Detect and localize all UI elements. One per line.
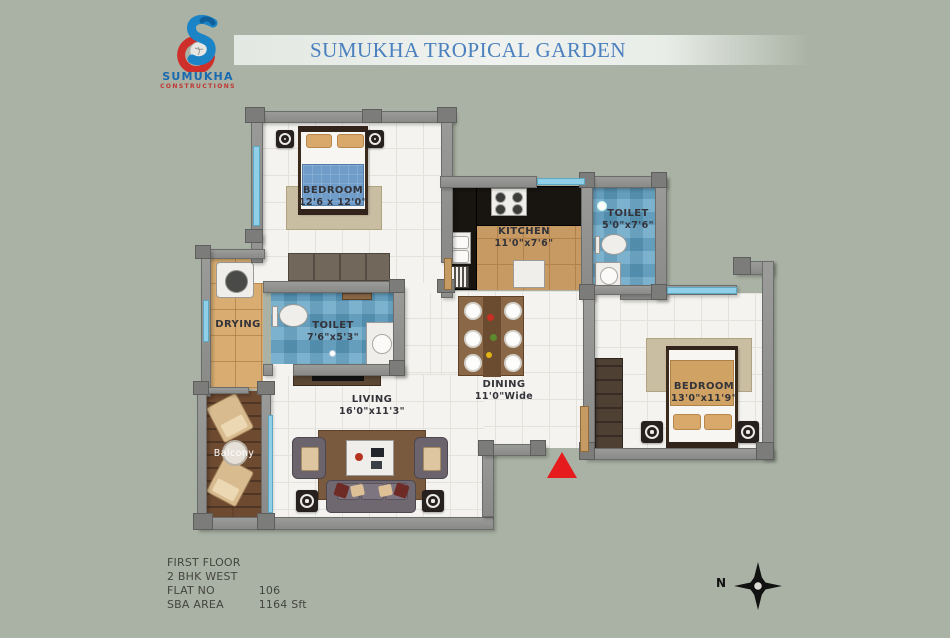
wall-pillar <box>389 279 405 293</box>
wall-pillar <box>651 284 667 300</box>
wall-segment <box>585 448 774 460</box>
toilet-tank <box>272 306 278 327</box>
plate <box>464 354 482 372</box>
plate <box>464 330 482 348</box>
refrigerator <box>513 260 545 288</box>
shelf <box>342 293 372 300</box>
coffee-table <box>346 440 394 476</box>
nightstand <box>737 421 759 443</box>
kitchen-door-leaf <box>444 258 452 290</box>
info-sba: SBA AREA 1164 Sft <box>167 598 307 612</box>
flat-no-label: FLAT NO <box>167 584 255 598</box>
wall-pillar <box>478 440 494 456</box>
floor-hall <box>403 291 443 378</box>
sliding-door-glazing <box>268 415 273 513</box>
window <box>667 287 737 294</box>
floor-plan-page: SUMUKHA TROPICAL GARDEN SUMUKHA CONSTRUC… <box>0 0 950 638</box>
wall-pillar <box>257 513 275 530</box>
wall-pillar <box>195 245 211 259</box>
info-flat: FLAT NO 106 <box>167 584 307 598</box>
armchair <box>292 437 326 479</box>
label-drying: DRYING <box>215 319 260 331</box>
washing-machine <box>216 262 254 298</box>
flat-no-value: 106 <box>259 584 281 598</box>
wardrobe <box>288 253 390 281</box>
logo-name: SUMUKHA <box>156 70 240 83</box>
label-kitchen: KITCHEN11'0"x7'6" <box>495 226 554 249</box>
wardrobe <box>595 358 623 450</box>
wall-pillar <box>245 107 265 123</box>
label-bedroom1: BEDROOM12'6 x 12'0" <box>299 185 367 208</box>
armchair <box>414 437 448 479</box>
wall-segment <box>762 261 774 460</box>
label-balcony: Balcony <box>214 448 254 459</box>
wall-pillar <box>193 381 209 395</box>
nightstand <box>366 130 384 148</box>
toilet-bowl <box>601 234 627 255</box>
label-toilet-common: TOILET7'6"x5'3" <box>307 320 359 343</box>
wall-pillar <box>579 284 595 300</box>
wall-pillar <box>437 107 457 123</box>
info-type: 2 BHK WEST <box>167 570 307 584</box>
north-label: N <box>716 576 726 590</box>
toilet-bowl <box>279 304 308 327</box>
wall-pillar <box>733 257 751 275</box>
wall-pillar <box>756 442 774 460</box>
speaker <box>296 490 318 512</box>
logo-subtitle: CONSTRUCTIONS <box>156 83 240 90</box>
header-band: SUMUKHA TROPICAL GARDEN <box>234 35 810 65</box>
wall-pillar <box>389 360 405 376</box>
nightstand <box>641 421 663 443</box>
gas-stove <box>491 188 527 216</box>
table-decor <box>487 314 494 321</box>
plate <box>464 302 482 320</box>
wall-segment <box>581 176 593 300</box>
page-title: SUMUKHA TROPICAL GARDEN <box>310 38 626 63</box>
sba-label: SBA AREA <box>167 598 255 612</box>
wall-segment <box>251 111 455 123</box>
wall-pillar <box>530 440 546 456</box>
label-toilet-attached: TOILET5'0"x7'6" <box>602 208 654 231</box>
wall-segment <box>655 176 667 300</box>
plate <box>504 302 522 320</box>
wall-segment <box>197 517 494 530</box>
wall-pillar <box>193 513 213 530</box>
window <box>537 178 585 185</box>
wall-segment <box>263 364 273 376</box>
window <box>253 146 260 226</box>
wall-pillar <box>257 381 275 395</box>
window <box>203 300 209 342</box>
wall-pillar <box>245 229 263 243</box>
wall-pillar <box>362 109 382 123</box>
wall-pillar <box>651 172 667 188</box>
wall-segment <box>440 176 537 188</box>
label-bedroom2: BEDROOM13'0"x11'9" <box>671 381 737 404</box>
wall-segment <box>197 385 207 527</box>
plate <box>504 354 522 372</box>
nightstand <box>276 130 294 148</box>
entry-marker <box>547 452 577 478</box>
builder-logo: SUMUKHA CONSTRUCTIONS <box>156 14 240 102</box>
plate <box>504 330 522 348</box>
wall-segment <box>207 387 249 394</box>
sofa <box>326 480 416 513</box>
speaker <box>422 490 444 512</box>
north-compass: N <box>714 558 784 612</box>
table-decor <box>490 334 497 341</box>
floor-drain <box>329 350 336 357</box>
table-decor <box>486 352 492 358</box>
label-dining: DINING11'0"Wide <box>475 379 533 402</box>
entry-door-leaf <box>580 406 589 452</box>
flat-info: FIRST FLOOR 2 BHK WEST FLAT NO 106 SBA A… <box>167 556 307 612</box>
logo-mark-icon <box>166 14 230 72</box>
sba-value: 1164 Sft <box>259 598 307 612</box>
compass-rose-icon <box>728 560 784 612</box>
wall-segment <box>263 281 395 293</box>
label-living: LIVING16'0"x11'3" <box>339 394 405 417</box>
info-floor: FIRST FLOOR <box>167 556 307 570</box>
toilet-tank <box>595 236 600 254</box>
